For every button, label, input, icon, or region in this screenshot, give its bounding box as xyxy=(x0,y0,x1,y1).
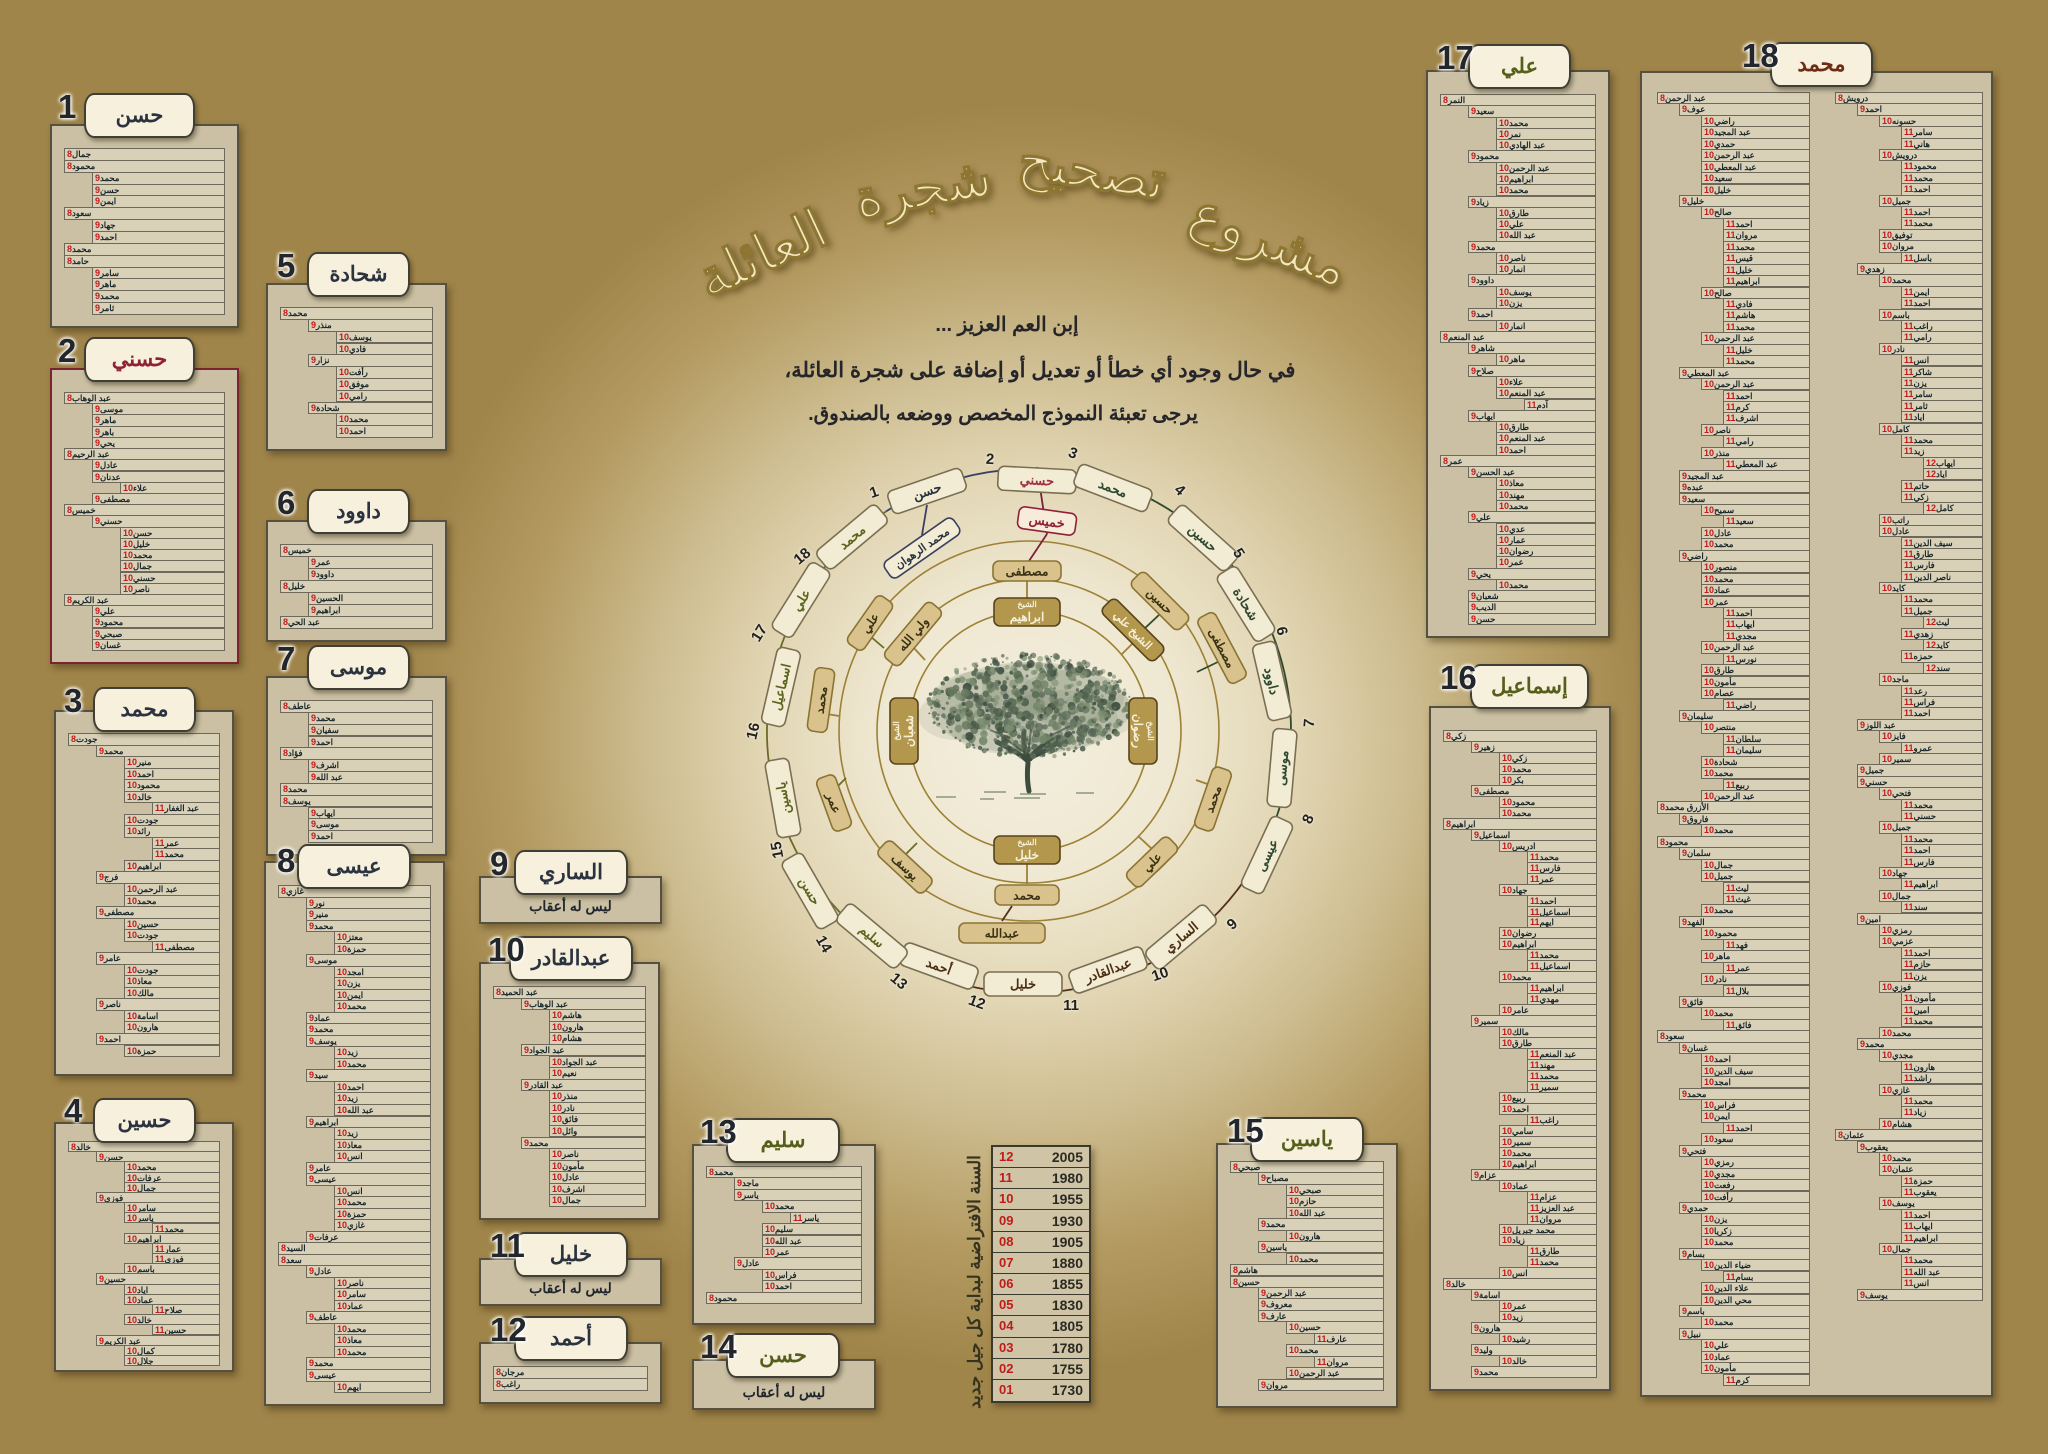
svg-text:2: 2 xyxy=(985,451,994,468)
svg-text:الشيخ: الشيخ xyxy=(1017,838,1036,848)
svg-text:7: 7 xyxy=(1301,718,1319,728)
svg-text:15: 15 xyxy=(768,840,788,859)
svg-text:مصطفى: مصطفى xyxy=(1006,564,1049,578)
svg-text:محمد: محمد xyxy=(1013,888,1040,902)
svg-text:الشيخ: الشيخ xyxy=(892,721,902,740)
svg-text:13: 13 xyxy=(887,970,911,994)
svg-text:خليل: خليل xyxy=(1015,848,1039,862)
svg-text:ابراهيم: ابراهيم xyxy=(1010,610,1045,625)
svg-text:1: 1 xyxy=(867,483,880,502)
svg-text:10: 10 xyxy=(1149,964,1170,986)
svg-text:9: 9 xyxy=(1224,915,1241,933)
svg-text:الشيخ: الشيخ xyxy=(1017,600,1036,610)
svg-text:شعبان: شعبان xyxy=(902,715,916,747)
svg-text:14: 14 xyxy=(812,933,835,957)
svg-text:16: 16 xyxy=(743,721,763,741)
svg-text:خليل: خليل xyxy=(1010,977,1036,992)
svg-text:رضوان: رضوان xyxy=(1130,714,1145,749)
svg-text:حسني: حسني xyxy=(1019,472,1054,490)
svg-text:الشيخ: الشيخ xyxy=(1145,721,1155,740)
svg-text:17: 17 xyxy=(748,622,771,645)
svg-text:عبدالله: عبدالله xyxy=(985,926,1019,940)
svg-text:11: 11 xyxy=(1063,997,1079,1014)
svg-text:8: 8 xyxy=(1299,812,1318,827)
svg-text:12: 12 xyxy=(966,992,987,1014)
svg-text:3: 3 xyxy=(1066,444,1080,463)
svg-text:4: 4 xyxy=(1171,481,1189,500)
